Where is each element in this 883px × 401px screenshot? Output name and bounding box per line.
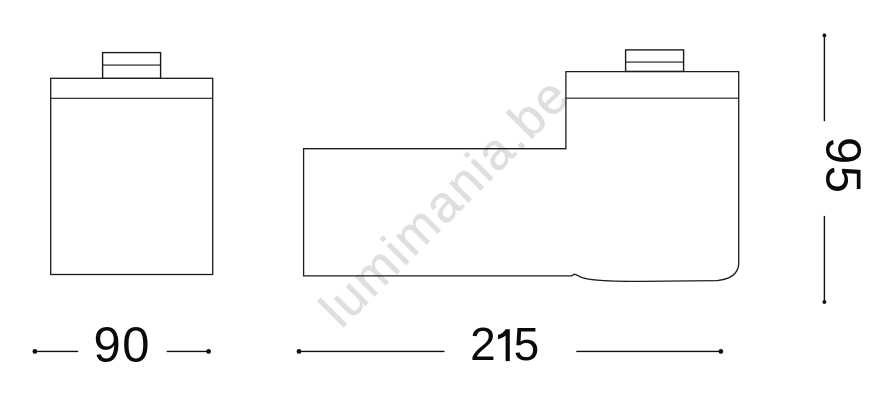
- svg-text:2: 2: [470, 318, 496, 370]
- svg-text:90: 90: [94, 319, 152, 373]
- svg-text:lumimania.be: lumimania.be: [309, 66, 581, 338]
- svg-text:5: 5: [514, 318, 540, 370]
- svg-text:95: 95: [816, 137, 870, 195]
